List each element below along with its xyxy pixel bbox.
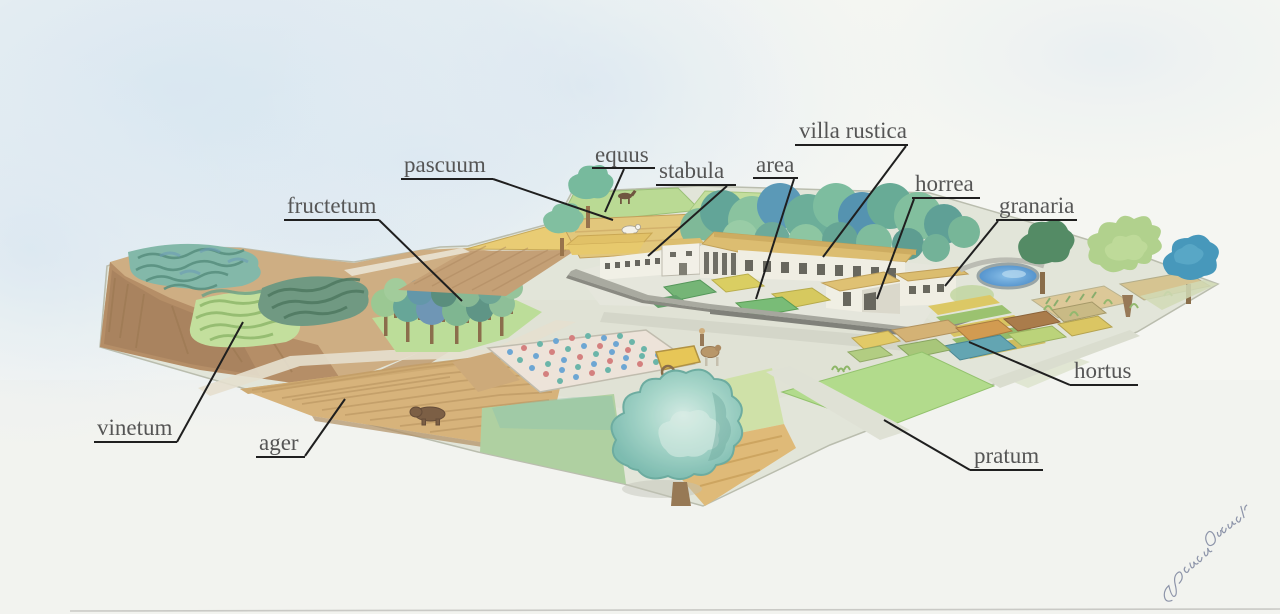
svg-text:ager: ager	[259, 430, 299, 455]
svg-text:pratum: pratum	[974, 443, 1039, 468]
svg-text:area: area	[756, 152, 794, 177]
svg-text:stabula: stabula	[659, 158, 724, 183]
svg-text:hortus: hortus	[1074, 358, 1132, 383]
svg-text:villa rustica: villa rustica	[799, 118, 907, 143]
svg-text:fructetum: fructetum	[287, 193, 377, 218]
svg-text:granaria: granaria	[999, 193, 1074, 218]
svg-text:vinetum: vinetum	[97, 415, 172, 440]
svg-text:equus: equus	[595, 142, 649, 167]
svg-text:horrea: horrea	[915, 171, 974, 196]
svg-text:pascuum: pascuum	[404, 152, 486, 177]
